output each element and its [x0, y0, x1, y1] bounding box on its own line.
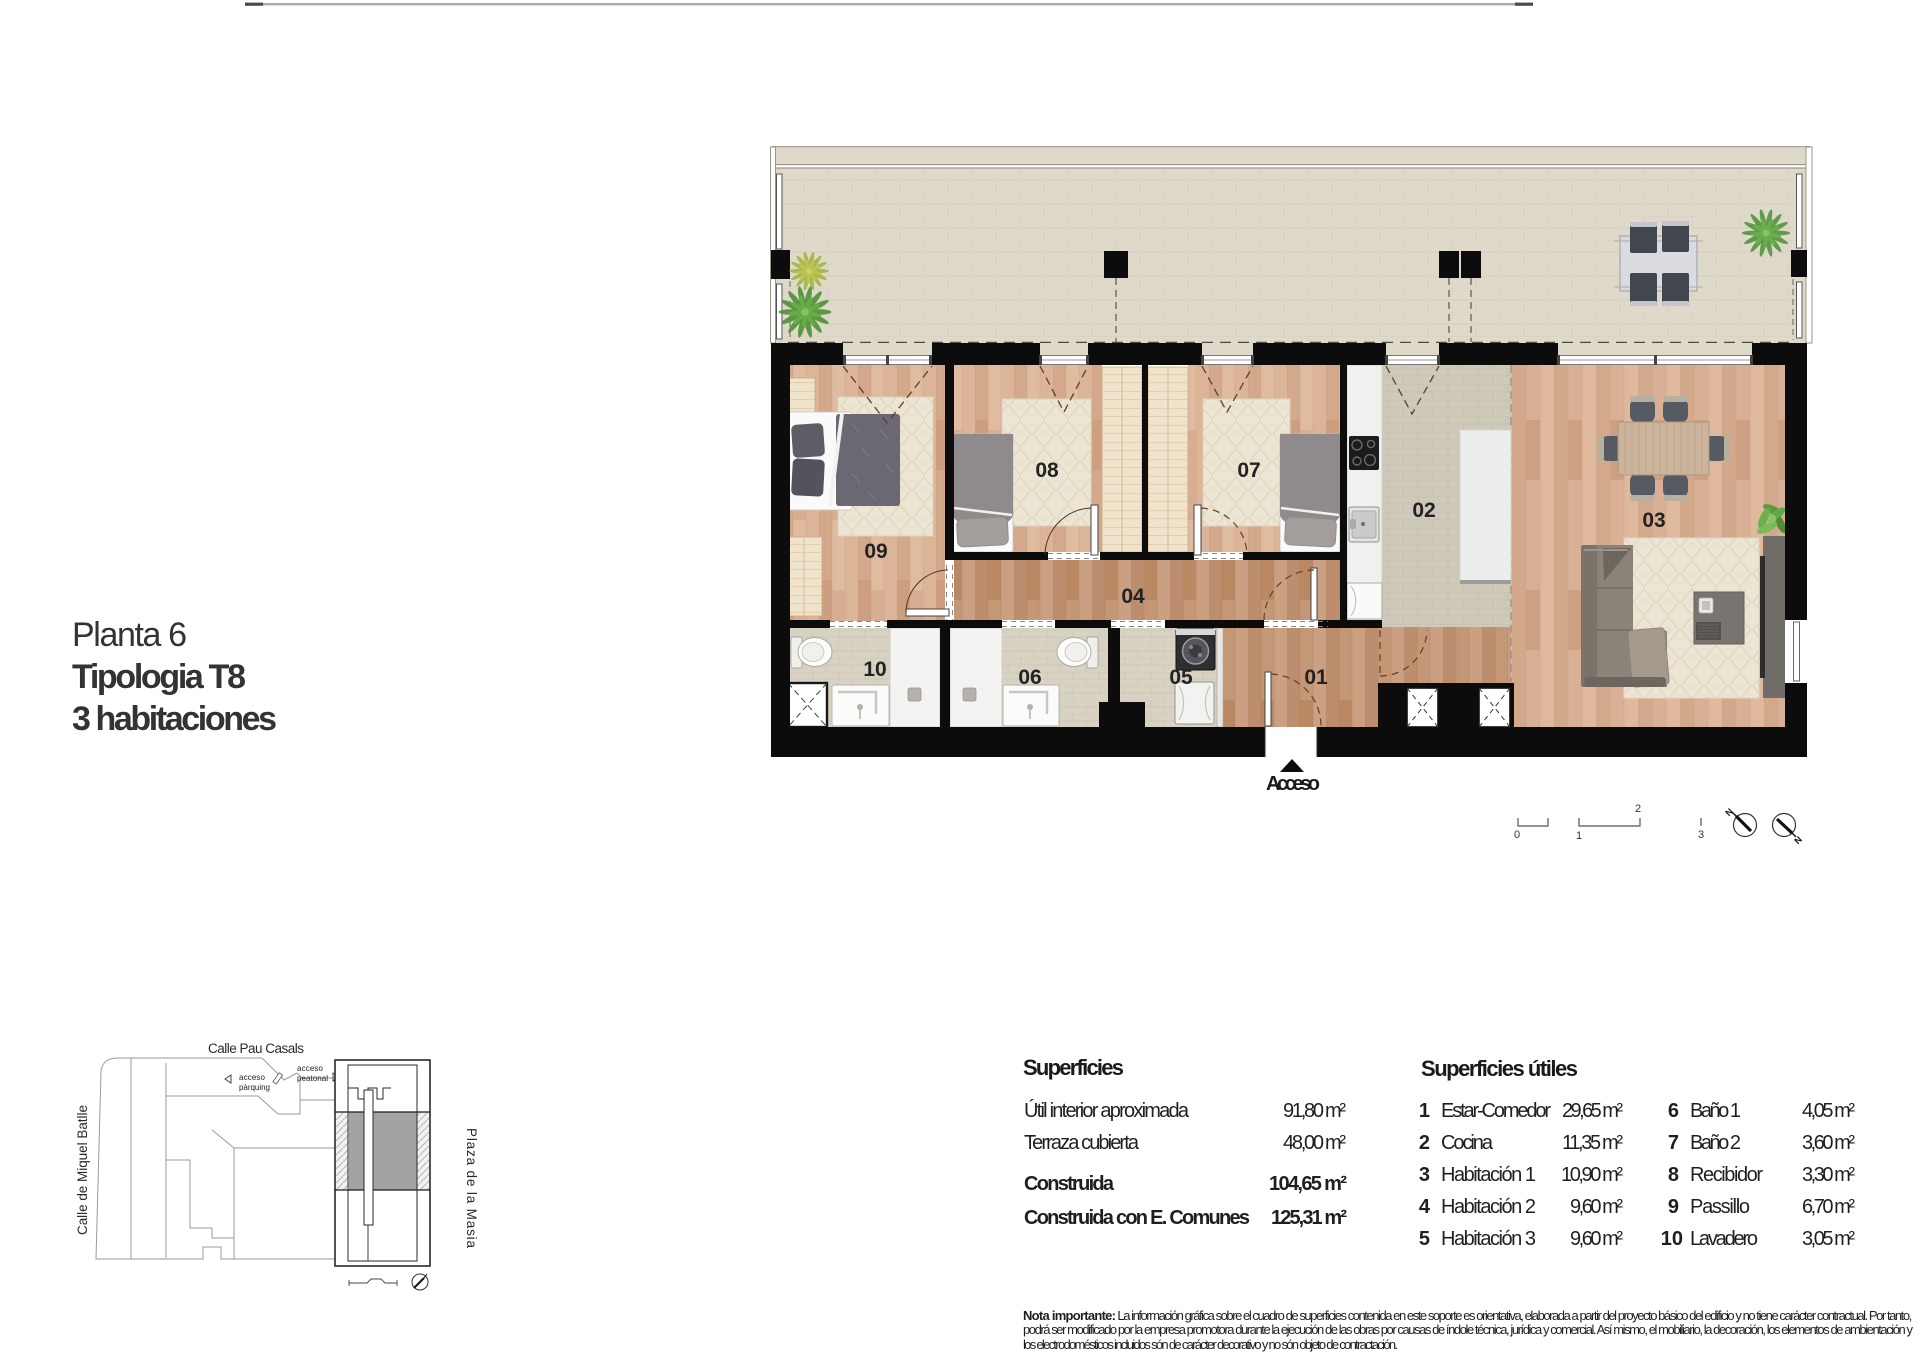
svg-text:Cocina: Cocina	[1441, 1132, 1494, 1154]
svg-text:3: 3	[1698, 829, 1704, 841]
svg-text:podrá ser modificado por la em: podrá ser modificado por la empresa prom…	[1023, 1322, 1913, 1337]
svg-text:peatonal: peatonal	[297, 1074, 328, 1083]
svg-text:Superficies útiles: Superficies útiles	[1421, 1056, 1578, 1081]
svg-text:Superficies: Superficies	[1023, 1055, 1124, 1080]
svg-text:Planta 6: Planta 6	[72, 616, 187, 654]
svg-text:08: 08	[1035, 459, 1059, 482]
svg-text:Habitación 1: Habitación 1	[1441, 1164, 1536, 1186]
svg-text:05: 05	[1169, 666, 1193, 689]
svg-text:Baño 1: Baño 1	[1690, 1100, 1741, 1122]
svg-text:9,60 m²: 9,60 m²	[1570, 1228, 1623, 1250]
svg-text:Terraza cubierta: Terraza cubierta	[1024, 1132, 1140, 1154]
svg-text:Plaza de la Masia: Plaza de la Masia	[464, 1128, 479, 1248]
svg-text:acceso: acceso	[239, 1073, 266, 1082]
svg-text:1: 1	[1576, 830, 1582, 842]
svg-text:3,60 m²: 3,60 m²	[1802, 1132, 1855, 1154]
svg-text:Estar-Comedor: Estar-Comedor	[1441, 1100, 1551, 1122]
svg-text:3 habitaciones: 3 habitaciones	[72, 700, 277, 738]
svg-text:Lavadero: Lavadero	[1690, 1228, 1758, 1250]
svg-text:4: 4	[1419, 1196, 1431, 1218]
svg-text:125,31 m²: 125,31 m²	[1271, 1207, 1347, 1229]
svg-text:04: 04	[1121, 585, 1145, 608]
svg-text:0: 0	[1514, 829, 1520, 841]
svg-text:9: 9	[1668, 1196, 1679, 1218]
svg-text:Acceso: Acceso	[1266, 773, 1320, 795]
svg-text:09: 09	[864, 540, 887, 563]
svg-text:1: 1	[1419, 1100, 1430, 1122]
svg-text:Nota importante: La informació: Nota importante: La información gráfica …	[1023, 1308, 1912, 1323]
svg-text:acceso: acceso	[297, 1064, 324, 1073]
svg-text:2: 2	[1635, 803, 1641, 815]
svg-text:los electrodomésticos incluido: los electrodomésticos incluidos són de c…	[1023, 1337, 1398, 1352]
svg-text:Recibidor: Recibidor	[1690, 1164, 1763, 1186]
svg-text:Construida con E. Comunes: Construida con E. Comunes	[1024, 1207, 1250, 1229]
svg-text:Baño 2: Baño 2	[1690, 1132, 1741, 1154]
svg-text:3,30 m²: 3,30 m²	[1802, 1164, 1855, 1186]
svg-text:07: 07	[1237, 459, 1260, 482]
svg-text:02: 02	[1412, 499, 1435, 522]
svg-text:3,05 m²: 3,05 m²	[1802, 1228, 1855, 1250]
svg-text:2: 2	[1419, 1132, 1430, 1154]
svg-text:Passillo: Passillo	[1690, 1196, 1750, 1218]
svg-text:6: 6	[1668, 1100, 1679, 1122]
svg-text:9,60 m²: 9,60 m²	[1570, 1196, 1623, 1218]
svg-text:01: 01	[1304, 666, 1328, 689]
svg-text:6,70 m²: 6,70 m²	[1802, 1196, 1855, 1218]
svg-text:10,90 m²: 10,90 m²	[1561, 1164, 1623, 1186]
svg-text:Habitación 3: Habitación 3	[1441, 1228, 1536, 1250]
svg-text:91,80 m²: 91,80 m²	[1283, 1100, 1346, 1122]
svg-text:4,05 m²: 4,05 m²	[1802, 1100, 1855, 1122]
svg-text:Construida: Construida	[1024, 1173, 1115, 1195]
svg-text:5: 5	[1419, 1228, 1430, 1250]
svg-text:11,35 m²: 11,35 m²	[1562, 1132, 1623, 1154]
svg-text:10: 10	[1661, 1228, 1683, 1250]
svg-text:Tipologia T8: Tipologia T8	[72, 658, 246, 696]
svg-text:Calle Pau Casals: Calle Pau Casals	[208, 1041, 304, 1056]
svg-text:8: 8	[1668, 1164, 1679, 1186]
svg-text:06: 06	[1018, 666, 1041, 689]
svg-text:104,65 m²: 104,65 m²	[1269, 1173, 1347, 1195]
svg-text:3: 3	[1419, 1164, 1430, 1186]
svg-text:Habitación 2: Habitación 2	[1441, 1196, 1536, 1218]
svg-text:10: 10	[863, 658, 886, 681]
svg-text:7: 7	[1668, 1132, 1679, 1154]
svg-text:Útil interior aproximada: Útil interior aproximada	[1024, 1099, 1190, 1122]
svg-text:pàrquing: pàrquing	[239, 1083, 270, 1092]
svg-text:Calle de Miquel Batlle: Calle de Miquel Batlle	[75, 1105, 90, 1235]
svg-text:48,00 m²: 48,00 m²	[1283, 1132, 1346, 1154]
svg-text:03: 03	[1642, 509, 1665, 532]
svg-text:29,65 m²: 29,65 m²	[1562, 1100, 1623, 1122]
